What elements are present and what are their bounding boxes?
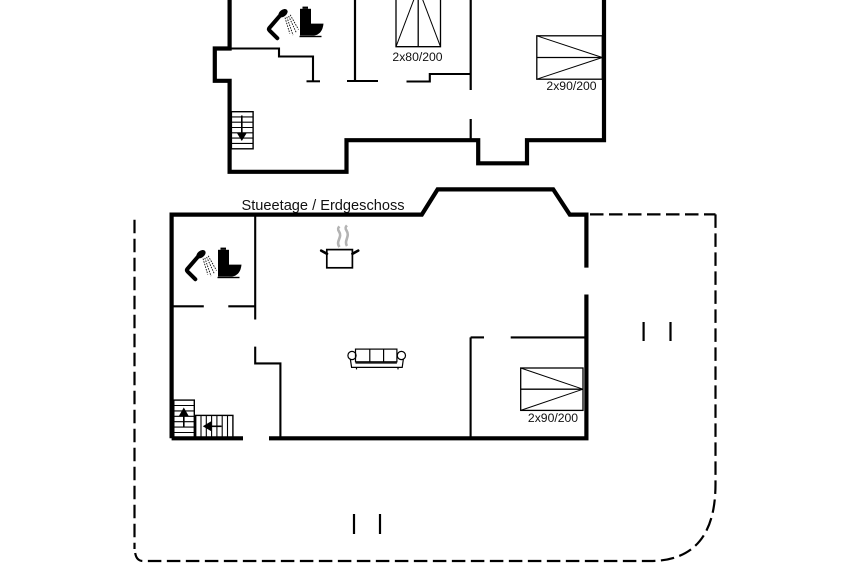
- svg-text:Stueetage / Erdgeschoss: Stueetage / Erdgeschoss: [242, 198, 405, 214]
- svg-text:2x80/200: 2x80/200: [392, 50, 442, 64]
- svg-text:2x90/200: 2x90/200: [546, 79, 596, 93]
- svg-text:2x90/200: 2x90/200: [528, 411, 578, 425]
